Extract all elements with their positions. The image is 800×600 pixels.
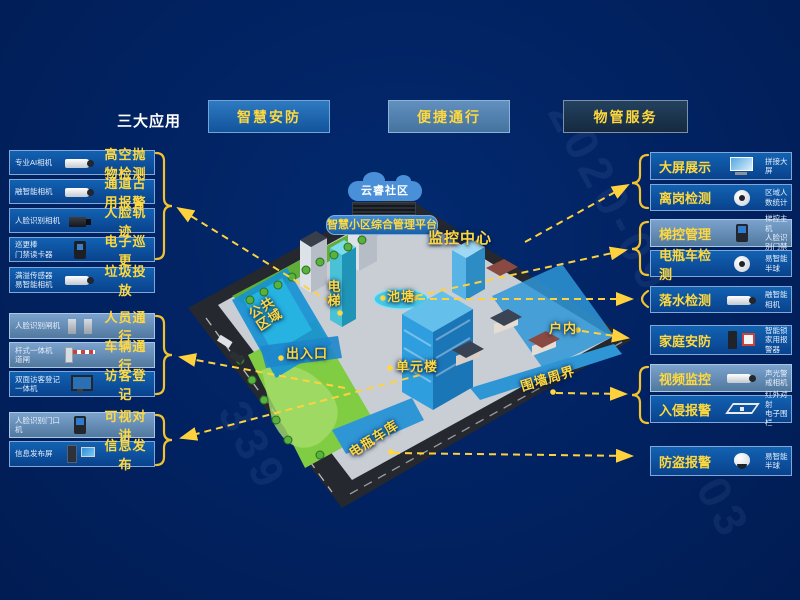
feature-row-video-wall[interactable]: 大屏展示 拼接大屏 bbox=[650, 152, 792, 180]
access-panel-icon bbox=[723, 222, 761, 244]
feature-label: 防盗报警 bbox=[654, 452, 723, 471]
device-name: 满溢传感器 易智能相机 bbox=[12, 271, 61, 290]
visitor-kiosk-icon bbox=[61, 373, 99, 395]
feature-row-ebike-detect[interactable]: 电瓶车检测 易智能半球 bbox=[650, 250, 792, 277]
feature-row-visitor[interactable]: 双面访客登记 一体机 访客登记 bbox=[9, 371, 155, 397]
card-reader-icon bbox=[61, 239, 99, 261]
feature-row-garbage[interactable]: 满溢传感器 易智能相机 垃圾投放 bbox=[9, 267, 155, 293]
feature-row-video-surveillance[interactable]: 视频监控 声光警戒相机 bbox=[650, 364, 792, 392]
device-name: 杆式一体机 道闸 bbox=[12, 346, 61, 365]
zone-label-entrance: 出入口 bbox=[286, 347, 328, 361]
zone-label-unit-building: 单元楼 bbox=[396, 360, 438, 374]
turnstile-icon bbox=[61, 315, 99, 337]
feature-row-drowning-detect[interactable]: 落水检测 融智能相机 bbox=[650, 286, 792, 313]
turret-camera-icon bbox=[723, 450, 761, 472]
platform-bar: 智慧小区综合管理平台 bbox=[326, 215, 438, 235]
zone-label-elevator: 电 梯 bbox=[327, 280, 342, 309]
device-name: 巡更棒 门禁读卡器 bbox=[12, 240, 61, 259]
device-name: 红外对射 电子围栏 bbox=[761, 390, 788, 428]
bullet-camera-icon bbox=[61, 181, 99, 203]
zone-label-indoor: 户内 bbox=[549, 322, 577, 336]
device-name: 易智能半球 bbox=[761, 452, 788, 471]
page-title: 三大应用 bbox=[117, 110, 181, 131]
feature-row-burglar-alarm[interactable]: 防盗报警 易智能半球 bbox=[650, 446, 792, 476]
feature-label: 家庭安防 bbox=[654, 331, 723, 350]
bullet-camera-icon bbox=[723, 289, 761, 311]
feature-row-elevator-control[interactable]: 梯控管理 梯控主机 人脸识别门禁 bbox=[650, 219, 792, 247]
zone-label-monitor-center: 监控中心 bbox=[428, 231, 492, 248]
tab-property-service[interactable]: 物管服务 bbox=[563, 100, 688, 133]
smart-lock-alarm-icon bbox=[723, 329, 761, 351]
tab-smart-security[interactable]: 智慧安防 bbox=[208, 100, 330, 133]
zone-label-pond: 池塘 bbox=[387, 290, 415, 304]
device-name: 人脸识别相机 bbox=[12, 216, 61, 225]
tab-convenient-access[interactable]: 便捷通行 bbox=[388, 100, 510, 133]
device-name: 信息发布屏 bbox=[12, 449, 61, 458]
device-name: 人脸识别闸机 bbox=[12, 321, 61, 330]
device-name: 双面访客登记 一体机 bbox=[12, 375, 61, 394]
feature-label: 离岗检测 bbox=[654, 188, 723, 207]
feature-label: 大屏展示 bbox=[654, 157, 723, 176]
door-station-icon bbox=[61, 414, 99, 436]
feature-row-epatrol[interactable]: 巡更棒 门禁读卡器 电子巡更 bbox=[9, 237, 155, 262]
device-name: 融智能相机 bbox=[761, 290, 788, 309]
device-name: 梯控主机 人脸识别门禁 bbox=[761, 214, 788, 252]
feature-row-falling-object[interactable]: 专业AI相机 高空抛物检测 bbox=[9, 150, 155, 175]
bullet-camera-icon bbox=[723, 367, 761, 389]
feature-row-intrusion-alarm[interactable]: 入侵报警 红外对射 电子围栏 bbox=[650, 395, 792, 423]
bullet-camera-icon bbox=[61, 152, 99, 174]
server-rack-icon bbox=[352, 202, 416, 215]
device-name: 专业AI相机 bbox=[12, 158, 61, 167]
feature-row-home-security[interactable]: 家庭安防 智能锁 家用报警器 bbox=[650, 325, 792, 355]
perimeter-fence-icon bbox=[723, 398, 761, 420]
device-name: 区域人数统计 bbox=[761, 188, 788, 207]
device-name: 融智能相机 bbox=[12, 187, 61, 196]
feature-row-channel-occupancy[interactable]: 融智能相机 通道占用报警 bbox=[9, 179, 155, 204]
dome-camera-icon bbox=[723, 253, 761, 275]
feature-label: 视频监控 bbox=[654, 369, 723, 388]
feature-row-absence-detect[interactable]: 离岗检测 区域人数统计 bbox=[650, 184, 792, 211]
video-wall-icon bbox=[723, 155, 761, 177]
box-camera-icon bbox=[61, 210, 99, 232]
feature-label: 垃圾投放 bbox=[99, 261, 152, 299]
barrier-gate-icon bbox=[61, 344, 99, 366]
feature-label: 信息发布 bbox=[99, 435, 152, 473]
feature-label: 梯控管理 bbox=[654, 224, 723, 243]
feature-label: 落水检测 bbox=[654, 290, 723, 309]
dome-camera-icon bbox=[723, 187, 761, 209]
bullet-camera-icon bbox=[61, 269, 99, 291]
device-name: 声光警戒相机 bbox=[761, 369, 788, 388]
device-name: 易智能半球 bbox=[761, 254, 788, 273]
feature-row-face-track[interactable]: 人脸识别相机 人脸轨迹 bbox=[9, 208, 155, 233]
cloud-platform: 云睿社区 bbox=[348, 181, 422, 201]
feature-label: 入侵报警 bbox=[654, 400, 723, 419]
device-name: 智能锁 家用报警器 bbox=[761, 326, 788, 354]
device-name: 拼接大屏 bbox=[761, 157, 788, 176]
device-name: 人脸识别门口机 bbox=[12, 416, 61, 435]
cloud-label: 云睿社区 bbox=[348, 181, 422, 201]
feature-row-info-publish[interactable]: 信息发布屏 信息发布 bbox=[9, 441, 155, 467]
info-screen-icon bbox=[61, 443, 99, 465]
feature-label: 电瓶车检测 bbox=[654, 245, 723, 283]
smart-community-dashboard: 2020-09 339 03 bbox=[0, 0, 800, 600]
feature-label: 访客登记 bbox=[99, 365, 152, 403]
